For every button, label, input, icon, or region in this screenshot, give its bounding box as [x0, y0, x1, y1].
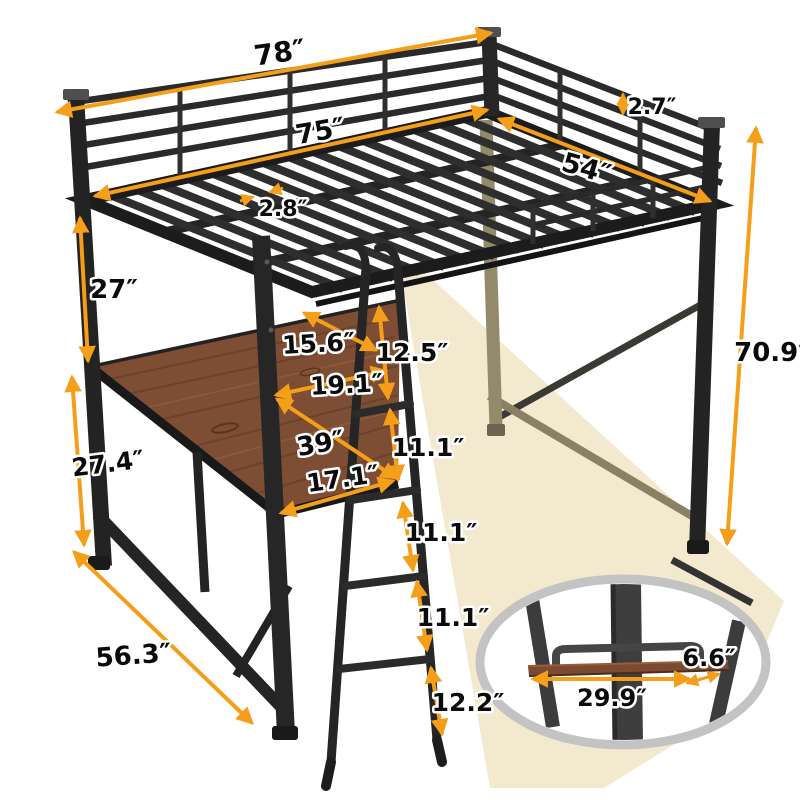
- label-desk-clearance: 19.1″: [309, 368, 383, 401]
- label-overall-height: 70.9″: [734, 338, 800, 368]
- label-desk-height: 27.4″: [70, 445, 146, 483]
- label-ladder-step-4: 11.1″: [417, 603, 490, 632]
- label-ladder-step-3: 11.1″: [405, 518, 478, 547]
- label-base-depth: 56.3″: [95, 638, 173, 673]
- screw-dot: [269, 328, 274, 333]
- product-dimension-diagram: 78″ 75″ 2.7″ 54″ 2.8″ 27″ 70.9″ 15.6″ 19…: [0, 0, 800, 800]
- label-slat-gap: 2.8″: [259, 197, 308, 222]
- dim-arrow-slat-gap-right: [270, 188, 283, 192]
- cross-brace: [494, 303, 704, 420]
- label-post-to-ladder: 15.6″: [281, 327, 355, 360]
- right-leg-foot: [687, 540, 709, 554]
- label-shelf-depth: 6.6″: [682, 644, 736, 672]
- label-ladder-step-1: 12.5″: [376, 338, 449, 367]
- front-post-foot: [272, 726, 298, 740]
- label-guardrail-gap: 2.7″: [628, 95, 677, 120]
- ladder-feet: [326, 740, 442, 786]
- label-bed-width: 54″: [558, 147, 614, 190]
- front-post: [261, 236, 286, 734]
- screw-dot: [265, 260, 270, 265]
- label-ladder-step-5: 12.2″: [432, 688, 505, 717]
- desk-leg: [197, 452, 205, 592]
- back-leg-foot: [487, 424, 505, 436]
- left-post-cap: [63, 89, 89, 100]
- label-shelf-length: 29.9″: [577, 684, 647, 712]
- back-post: [489, 33, 492, 116]
- label-ladder-step-2: 11.1″: [392, 433, 465, 462]
- dim-arrow-overall-height: [727, 128, 756, 544]
- base-stretcher: [97, 514, 284, 710]
- label-under-bed-clearance: 27″: [90, 275, 138, 305]
- right-post-cap: [698, 117, 725, 128]
